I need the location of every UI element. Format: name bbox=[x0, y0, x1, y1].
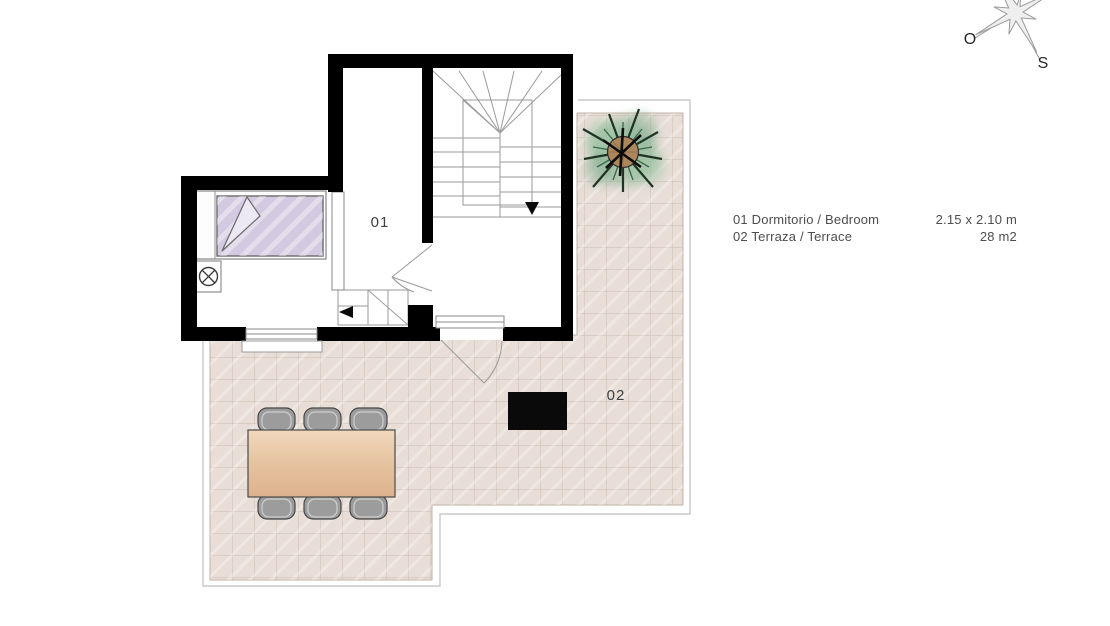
compass-south-label: S bbox=[1033, 55, 1053, 73]
chair-icon bbox=[258, 495, 295, 519]
legend-bedroom-label: 01 Dormitorio / Bedroom bbox=[733, 212, 879, 229]
terrace-number-label: 02 bbox=[596, 387, 636, 404]
chair-icon bbox=[350, 495, 387, 519]
chair-icon bbox=[304, 495, 341, 519]
legend: 01 Dormitorio / Bedroom 2.15 x 2.10 m 02… bbox=[733, 212, 1017, 245]
chair-icon bbox=[350, 408, 387, 432]
legend-terrace-label: 02 Terraza / Terrace bbox=[733, 229, 852, 246]
chair-icon bbox=[258, 408, 295, 432]
legend-bedroom-value: 2.15 x 2.10 m bbox=[936, 212, 1017, 229]
dining-table-icon bbox=[248, 430, 395, 497]
compass-west-label: O bbox=[960, 31, 980, 49]
legend-row-bedroom: 01 Dormitorio / Bedroom 2.15 x 2.10 m bbox=[733, 212, 1017, 229]
equipment-box bbox=[508, 392, 567, 430]
window bbox=[242, 327, 322, 352]
bedroom-number-label: 01 bbox=[362, 214, 398, 231]
lamp-table-icon bbox=[196, 261, 221, 292]
floor-plan-page: 01 02 O S 01 Dormitorio / Bedroom 2.15 x… bbox=[0, 0, 1110, 626]
bed-icon bbox=[196, 191, 326, 259]
small-steps bbox=[338, 290, 408, 325]
window-sill bbox=[242, 341, 322, 352]
legend-terrace-value: 28 m2 bbox=[980, 229, 1017, 246]
chair-icon bbox=[304, 408, 341, 432]
partition-wall bbox=[332, 192, 344, 290]
compass-rose-icon bbox=[975, 0, 1079, 60]
legend-row-terrace: 02 Terraza / Terrace 28 m2 bbox=[733, 229, 1017, 246]
floorplan-drawing bbox=[0, 0, 1110, 626]
